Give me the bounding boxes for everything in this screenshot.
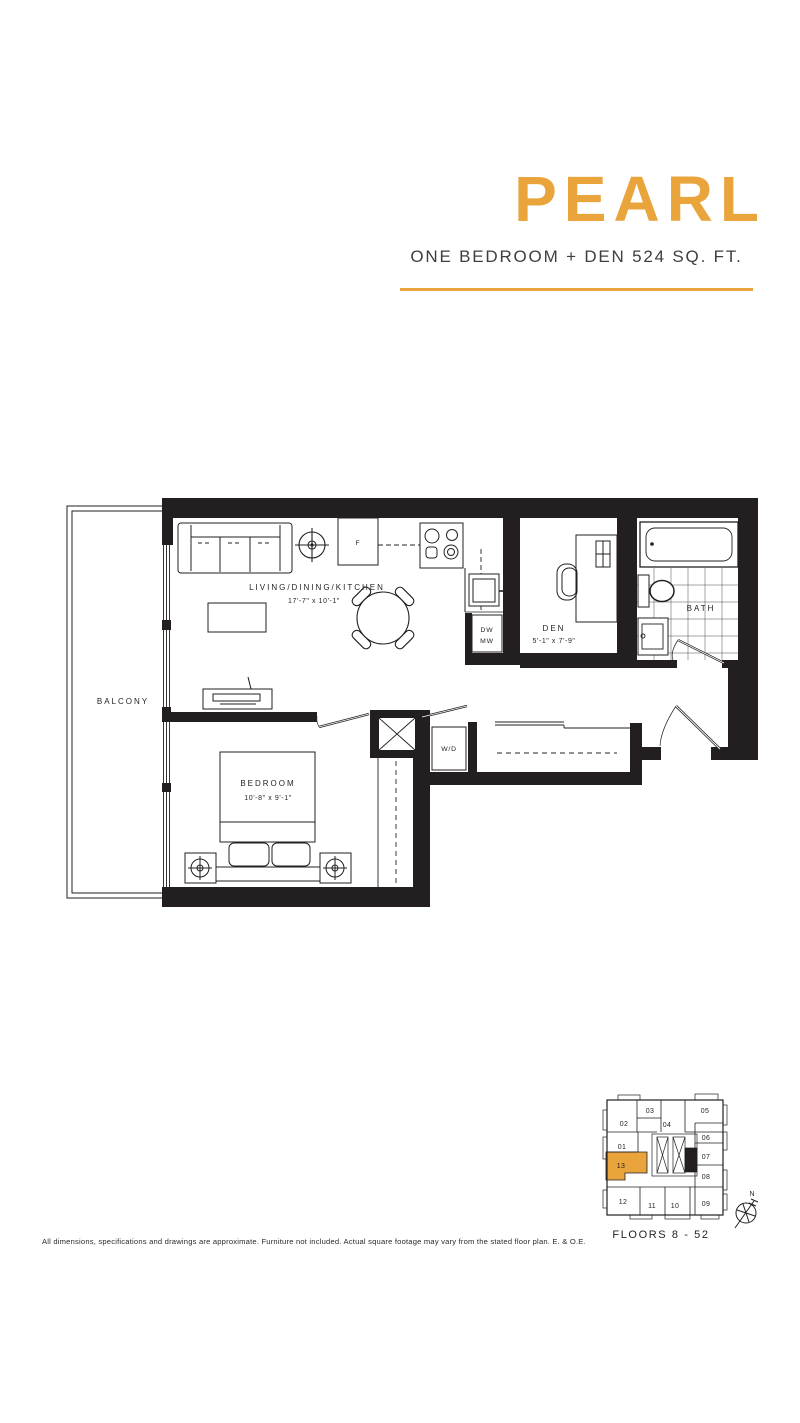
page-title: PEARL [514, 167, 766, 231]
dw-mw-closet: DW MW [472, 615, 502, 652]
keyplan-unit-03: 03 [646, 1108, 654, 1115]
keyplan-unit-04: 04 [663, 1122, 671, 1129]
desk-chair [557, 564, 577, 600]
living-dims: 17'-7" x 10'-1" [288, 598, 340, 605]
nightstand-right [320, 853, 351, 883]
vanity-sink [638, 618, 668, 655]
desk [576, 535, 617, 622]
disclaimer-text: All dimensions, specifications and drawi… [42, 1237, 602, 1246]
window-wall [164, 507, 170, 906]
den-label: DEN [543, 624, 566, 633]
north-arrow-icon [735, 1199, 758, 1228]
floor-plan-drawing: F DW MW [60, 485, 760, 915]
highlighted-unit-shape [606, 1152, 647, 1180]
fridge-label: F [356, 540, 361, 547]
keyplan-unit-12: 12 [619, 1199, 627, 1206]
sofa [178, 523, 292, 573]
keyplan-unit-11: 11 [648, 1203, 656, 1210]
title-divider [400, 288, 753, 291]
entry-door [660, 706, 720, 749]
bath-label: BATH [687, 604, 716, 613]
coat-closet [495, 722, 630, 753]
keyplan-unit-01: 01 [618, 1144, 626, 1151]
page-subtitle: ONE BEDROOM + DEN 524 SQ. FT. [400, 248, 753, 265]
living-label: LIVING/DINING/KITCHEN [249, 583, 385, 592]
fridge: F [338, 518, 378, 565]
keyplan-unit-09: 09 [702, 1201, 710, 1208]
key-plan: 01 02 03 04 05 06 07 08 09 10 11 12 13 N [595, 1082, 775, 1242]
dishwasher-label: DW [481, 627, 494, 634]
bedroom-dims: 10'-8" x 9'-1" [244, 795, 292, 802]
cooktop [420, 523, 463, 568]
keyplan-unit-08: 08 [702, 1174, 710, 1181]
shaft-closet [370, 710, 423, 758]
bedroom-closet [378, 758, 396, 887]
bedroom-label: BEDROOM [240, 779, 295, 788]
nightstand-left [185, 853, 216, 883]
den-dims: 5'-1" x 7'-9" [532, 638, 575, 645]
ceiling-light-icon [295, 528, 329, 562]
keyplan-unit-06: 06 [702, 1135, 710, 1142]
keyplan-unit-02: 02 [620, 1121, 628, 1128]
floorplan-page: PEARL ONE BEDROOM + DEN 524 SQ. FT. [0, 0, 800, 1423]
bedroom-door [317, 714, 369, 727]
keyplan-unit-05: 05 [701, 1108, 709, 1115]
coffee-table [208, 603, 266, 632]
bathtub [640, 522, 738, 567]
north-label: N [749, 1191, 754, 1198]
dining-table [350, 585, 415, 650]
keyplan-unit-13: 13 [617, 1163, 625, 1170]
microwave-label: MW [480, 638, 494, 645]
tv-console [203, 689, 272, 709]
kitchen-sink [469, 574, 505, 606]
floors-range-label: FLOORS 8 - 52 [598, 1229, 724, 1241]
balcony-label: BALCONY [97, 697, 149, 706]
bed [215, 752, 320, 881]
keyplan-unit-10: 10 [671, 1203, 679, 1210]
elevator-core [652, 1134, 697, 1176]
bath-door [672, 640, 724, 663]
keyplan-unit-07: 07 [702, 1154, 710, 1161]
washer-dryer-label: W/D [441, 746, 457, 753]
